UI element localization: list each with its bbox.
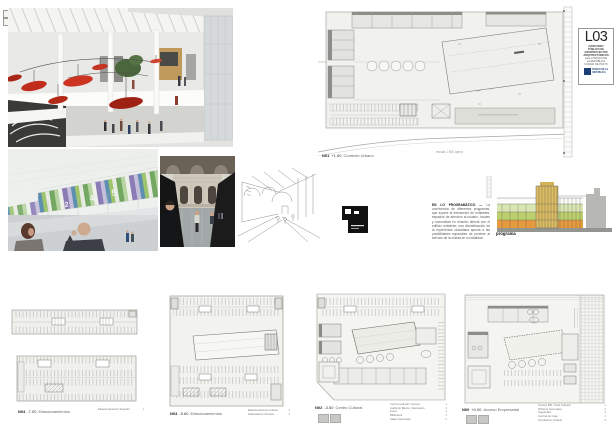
legend-number: 5 xyxy=(604,419,606,423)
plan-parking-upper xyxy=(8,300,148,404)
figure-ground-icon xyxy=(342,206,368,233)
concept-sketch-image xyxy=(238,162,320,244)
plan-ground-floor xyxy=(458,290,608,405)
main-site-plan xyxy=(318,6,570,156)
ladder-scale-strip xyxy=(563,6,574,159)
material-swatch xyxy=(318,414,329,423)
plan-parking-lower xyxy=(165,292,291,410)
material-swatch xyxy=(478,415,489,424)
plan-legend: Acceso BR / Café Cultural1 Oficinas Gene… xyxy=(538,404,606,423)
program-section-diagram xyxy=(494,178,614,234)
legend-number: 2 xyxy=(288,413,290,417)
mini-ladder-icon xyxy=(486,176,492,198)
program-caption: programa xyxy=(496,231,516,236)
plan-name: Centro Cultural xyxy=(335,405,362,410)
title-line: CIUDAD DE PASTO xyxy=(579,63,613,66)
title-block: L03 CONCURSO PÚBLICO DE ANTEPROYECTOS AR… xyxy=(578,28,614,85)
presentation-board: 2 4 5 xyxy=(0,0,616,434)
bank-logo-icon xyxy=(584,68,591,75)
legend-item: Circulación Vertical xyxy=(538,419,562,423)
plan-code: N01 xyxy=(322,153,329,158)
main-plan-scale-note: escala 1:500 aprox xyxy=(436,150,463,154)
legend-item: Subestación Técnica xyxy=(248,413,274,417)
plan-level: +1.50 xyxy=(331,153,341,158)
concept-body: La convivencia de diferentes programas, … xyxy=(432,203,490,240)
legend-item: Salas Generales xyxy=(390,418,411,422)
main-plan-label: N01+1.50Contexto Urbano xyxy=(322,153,374,158)
bank-logo-text: REPÚBLICA xyxy=(592,72,608,75)
legend-item: Estacionamiento Superior xyxy=(98,408,130,412)
plan-legend: Estacionamiento Inferior1 Subestación Té… xyxy=(248,409,290,416)
bank-logo: BANCO DE LA REPÚBLICA xyxy=(579,68,613,75)
render-hall-image: 2 4 5 xyxy=(8,149,158,251)
plan-name: Acceso Empresarial xyxy=(483,407,519,412)
plan-cultural-centre xyxy=(308,290,450,404)
plan-label: N00+0.00Acceso Empresarial xyxy=(462,407,519,412)
plan-level: +0.00 xyxy=(471,407,481,412)
plan-legend: Centro Cultural / Acceso1 Auditorio Banc… xyxy=(390,403,447,422)
render-facade-image xyxy=(160,156,235,247)
plan-name: Estacionamientos xyxy=(190,411,222,416)
plan-code: N02 xyxy=(315,405,322,410)
plan-code: N03 xyxy=(170,411,177,416)
legend-number: 1 xyxy=(142,408,144,412)
plan-legend: Estacionamiento Superior1 xyxy=(98,408,144,412)
plan-label: N03-5.60Estacionamientos xyxy=(170,411,222,416)
plan-level: -5.60 xyxy=(179,411,188,416)
plan-level: -7.00 xyxy=(27,409,36,414)
plan-level: -3.50 xyxy=(324,405,333,410)
plan-label: N02-3.50Centro Cultural xyxy=(315,405,362,410)
plan-code: N04 xyxy=(18,409,25,414)
render-atrium-image xyxy=(8,8,233,147)
plan-code: N00 xyxy=(462,407,469,412)
material-swatch xyxy=(330,414,341,423)
sheet-code: L03 xyxy=(579,30,613,45)
plan-name: Contexto Urbano xyxy=(343,153,373,158)
material-swatch xyxy=(466,415,477,424)
plan-name: Estacionamientos xyxy=(38,409,70,414)
plan-label: N04-7.00Estacionamientos xyxy=(18,409,70,414)
concept-paragraph: EN LO PROGRAMÁTICO — La convivencia de d… xyxy=(432,203,490,240)
legend-number: 5 xyxy=(445,418,447,422)
